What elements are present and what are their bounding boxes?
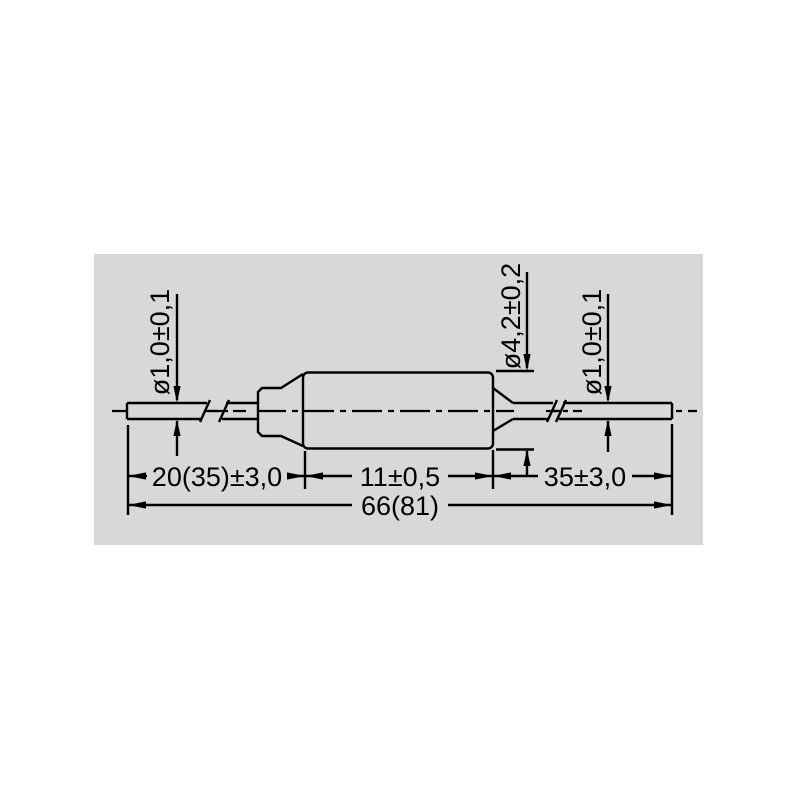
label-body-length: 11±0,5	[360, 462, 440, 492]
label-lead-left-diameter: ø1,0±0,1	[145, 289, 175, 395]
label-lead-right-diameter: ø1,0±0,1	[577, 289, 607, 395]
label-body-diameter: ø4,2±0,2	[496, 263, 526, 369]
page: ø1,0±0,1 ø4,2±0,2 ø1,0±0,1 20(35)±3,0 11…	[0, 0, 800, 800]
label-overall-length: 66(81)	[361, 491, 439, 521]
lead-left-segment-1	[127, 400, 210, 422]
dimension-drawing: ø1,0±0,1 ø4,2±0,2 ø1,0±0,1 20(35)±3,0 11…	[0, 0, 800, 800]
label-lead-left-length: 20(35)±3,0	[152, 462, 282, 492]
label-lead-right-length: 35±3,0	[544, 462, 626, 492]
